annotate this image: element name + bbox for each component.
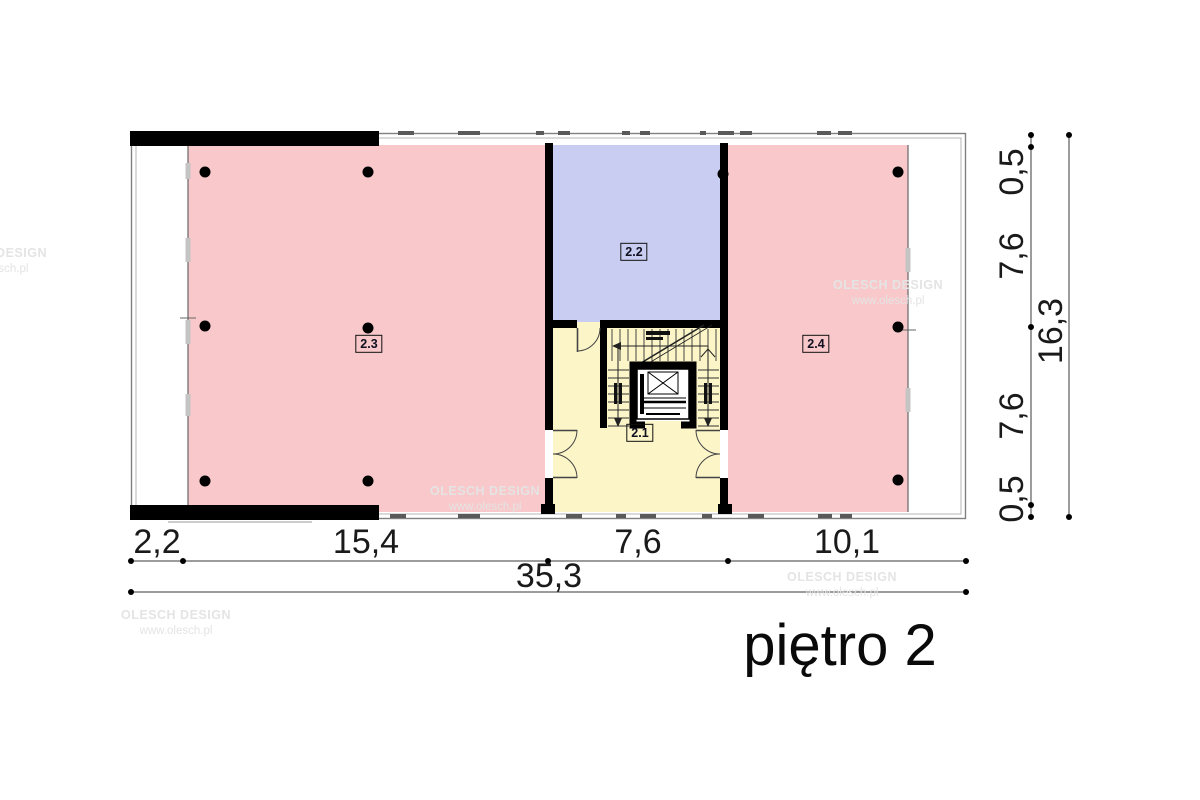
dim-label-right-4: 0,5 [995,475,1029,522]
watermark-line1: OLESCH DESIGN [833,278,943,294]
room-2-4-fill [728,145,908,512]
watermark-line1: OLESCH DESIGN [121,608,231,624]
exterior-wall-top-left [130,131,379,146]
watermark-line2: www.olesch.pl [0,262,47,276]
room-label-2-4: 2.4 [802,335,829,353]
exterior-wall-bottom-left [130,505,379,520]
watermark-line1: OLESCH DESIGN [787,570,897,586]
watermark: OLESCH DESIGN www.olesch.pl [0,246,47,276]
watermark-line1: OLESCH DESIGN [0,246,47,262]
dim-label-bottom-3: 7,6 [614,525,661,559]
dim-label-bottom-total: 35,3 [516,559,582,593]
watermark-line2: www.olesch.pl [430,500,540,514]
watermark: OLESCH DESIGN www.olesch.pl [430,484,540,514]
room-2-2-fill [553,145,720,322]
dim-label-right-total: 16,3 [1034,298,1068,364]
elevator [633,365,693,429]
dim-label-bottom-1: 2,2 [133,525,180,559]
dim-label-right-3: 7,6 [995,392,1029,439]
dim-label-right-2: 7,6 [995,232,1029,279]
watermark-line2: www.olesch.pl [121,624,231,638]
room-label-2-3: 2.3 [355,335,382,353]
watermark: OLESCH DESIGN www.olesch.pl [787,570,897,600]
dim-label-bottom-2: 15,4 [333,525,399,559]
watermark-line2: www.olesch.pl [787,586,897,600]
watermark-line1: OLESCH DESIGN [430,484,540,500]
floor-plan-page: 2.1 2.2 2.3 2.4 2,2 15,4 7,6 10,1 35,3 0… [0,0,1200,800]
watermark: OLESCH DESIGN www.olesch.pl [833,278,943,308]
watermark: OLESCH DESIGN www.olesch.pl [121,608,231,638]
dim-label-bottom-4: 10,1 [814,525,880,559]
room-label-2-2: 2.2 [620,243,647,261]
room-label-2-1: 2.1 [626,424,653,442]
watermark-line2: www.olesch.pl [833,294,943,308]
floor-title: piętro 2 [743,617,936,675]
dim-label-right-1: 0,5 [995,148,1029,195]
